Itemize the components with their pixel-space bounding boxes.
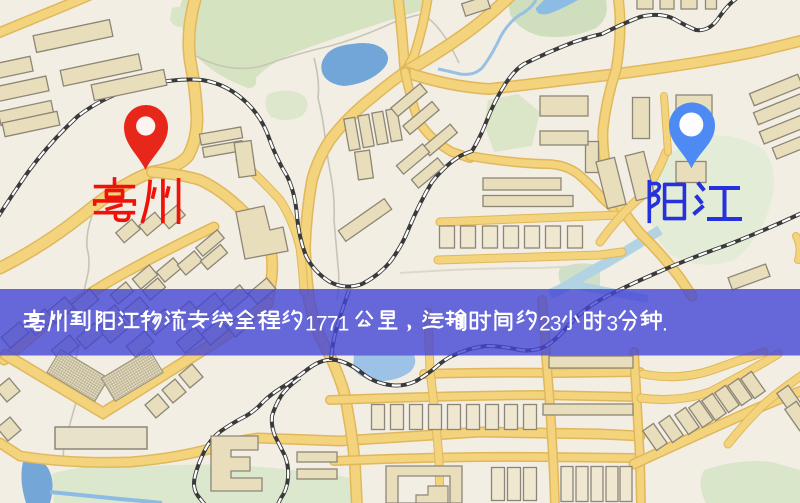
svg-text:23: 23 [539, 313, 561, 336]
svg-text:3: 3 [607, 313, 619, 336]
svg-text:.: . [662, 313, 668, 336]
svg-text:1771: 1771 [305, 313, 349, 336]
